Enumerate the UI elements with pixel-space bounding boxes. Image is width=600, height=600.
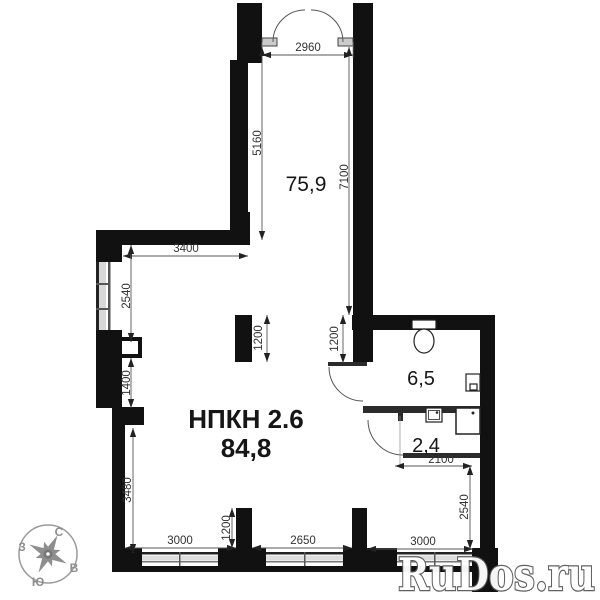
wall-left-cross-arm bbox=[112, 407, 144, 425]
compass-west-label: З bbox=[18, 540, 26, 554]
dim-label-1400: 1400 bbox=[121, 370, 133, 396]
dim-label-2960: 2960 bbox=[295, 42, 321, 54]
compass-south-label: Ю bbox=[32, 575, 44, 589]
shower-tray bbox=[456, 408, 480, 434]
dim-label-3400: 3400 bbox=[173, 243, 199, 255]
wall-left-corner-block bbox=[96, 230, 122, 262]
window-left-mullion-2 bbox=[96, 308, 111, 310]
window-left-band bbox=[99, 262, 106, 330]
window-left-inner-line bbox=[108, 262, 111, 330]
wall-corridor-right bbox=[353, 3, 373, 362]
door-sill-right bbox=[338, 38, 353, 46]
dim-label-3480: 3480 bbox=[122, 477, 134, 503]
sink-tap bbox=[436, 411, 439, 414]
wall-entry-left-block bbox=[237, 3, 262, 63]
floor-plan-svg: 2960 5160 7100 3400 2540 1400 3480 1200 … bbox=[0, 0, 600, 600]
pillar-interior bbox=[235, 315, 252, 362]
compass-north-label: С bbox=[55, 525, 64, 539]
window-bottom1-mullion bbox=[179, 552, 181, 566]
heater-box-detail bbox=[470, 384, 477, 390]
wall-corridor-left bbox=[230, 60, 248, 215]
unit-area-label: 84,8 bbox=[221, 433, 272, 463]
partition-bath-door-jamb bbox=[328, 362, 367, 366]
pillar-bottom-left bbox=[236, 508, 252, 550]
dim-label-2650: 2650 bbox=[290, 535, 316, 547]
dim-label-1200-bath: 1200 bbox=[329, 326, 341, 352]
dim-label-3000-right: 3000 bbox=[410, 536, 436, 548]
dim-label-7100: 7100 bbox=[339, 164, 351, 190]
wc-area-label: 2,4 bbox=[412, 435, 440, 457]
door-sill-left bbox=[262, 38, 277, 46]
shaft-box-inner bbox=[122, 341, 138, 354]
toilet-bowl bbox=[414, 329, 434, 353]
window-left-outer-line bbox=[96, 262, 99, 330]
bath-area-label: 6,5 bbox=[407, 368, 435, 390]
window-left-mullion-1 bbox=[96, 283, 111, 285]
window-bottom2-mullion bbox=[304, 552, 306, 566]
partition-wc-left-stub bbox=[398, 413, 403, 421]
pillar-bottom-right bbox=[352, 508, 367, 550]
dim-label-3000-left: 3000 bbox=[167, 535, 193, 547]
shower-drain bbox=[472, 412, 475, 415]
dim-label-5160: 5160 bbox=[252, 130, 264, 156]
toilet-tank bbox=[412, 320, 436, 329]
watermark-text: RuDos.ru bbox=[398, 548, 595, 600]
compass-hub-center bbox=[46, 552, 50, 556]
dim-label-2540-left: 2540 bbox=[121, 283, 133, 309]
unit-name-label: НПКН 2.6 bbox=[188, 404, 303, 434]
compass-east-label: В bbox=[70, 561, 79, 575]
wall-right-exterior bbox=[480, 330, 495, 572]
dim-label-1200-pillar: 1200 bbox=[253, 325, 265, 351]
floor-plan-image: 2960 5160 7100 3400 2540 1400 3480 1200 … bbox=[0, 0, 600, 600]
dim-label-2540-right: 2540 bbox=[459, 494, 471, 520]
dim-label-1200-bottom: 1200 bbox=[221, 515, 233, 541]
hall-area-label: 75,9 bbox=[286, 173, 327, 196]
background bbox=[0, 0, 600, 600]
